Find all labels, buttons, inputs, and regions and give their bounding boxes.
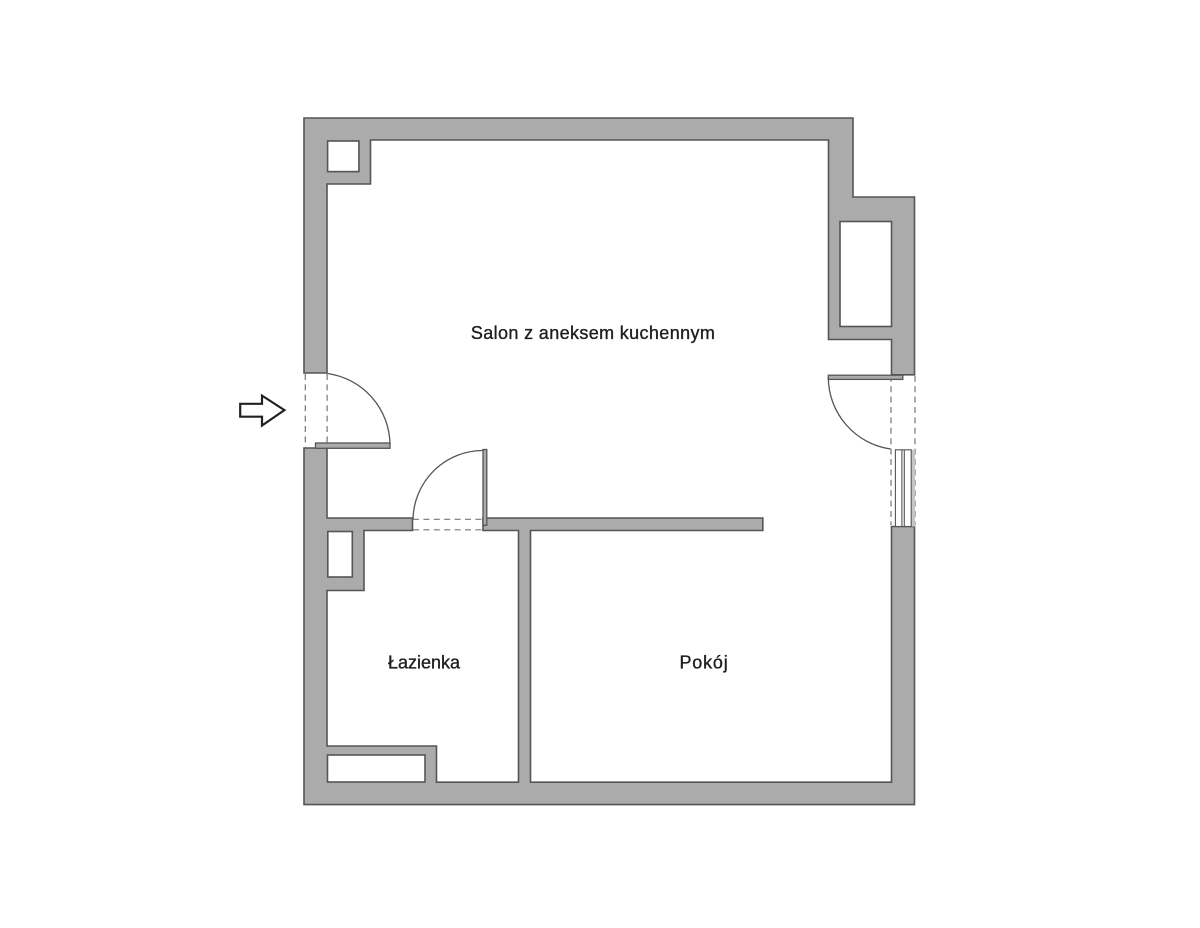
- svg-text:Pokój: Pokój: [679, 653, 728, 673]
- svg-text:Salon z aneksem kuchennym: Salon z aneksem kuchennym: [471, 323, 715, 343]
- svg-text:Łazienka: Łazienka: [388, 653, 461, 673]
